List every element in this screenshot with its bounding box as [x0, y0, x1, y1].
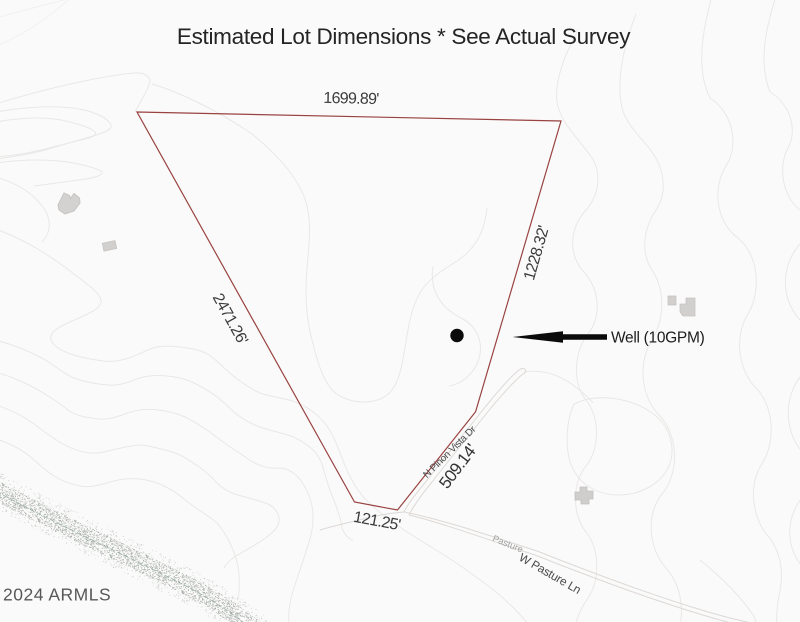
- svg-text:1699.89': 1699.89': [323, 90, 379, 108]
- svg-text:2024 ARMLS: 2024 ARMLS: [3, 585, 111, 605]
- svg-text:Estimated Lot Dimensions * See: Estimated Lot Dimensions * See Actual Su…: [177, 24, 631, 49]
- svg-text:Well (10GPM): Well (10GPM): [611, 330, 705, 347]
